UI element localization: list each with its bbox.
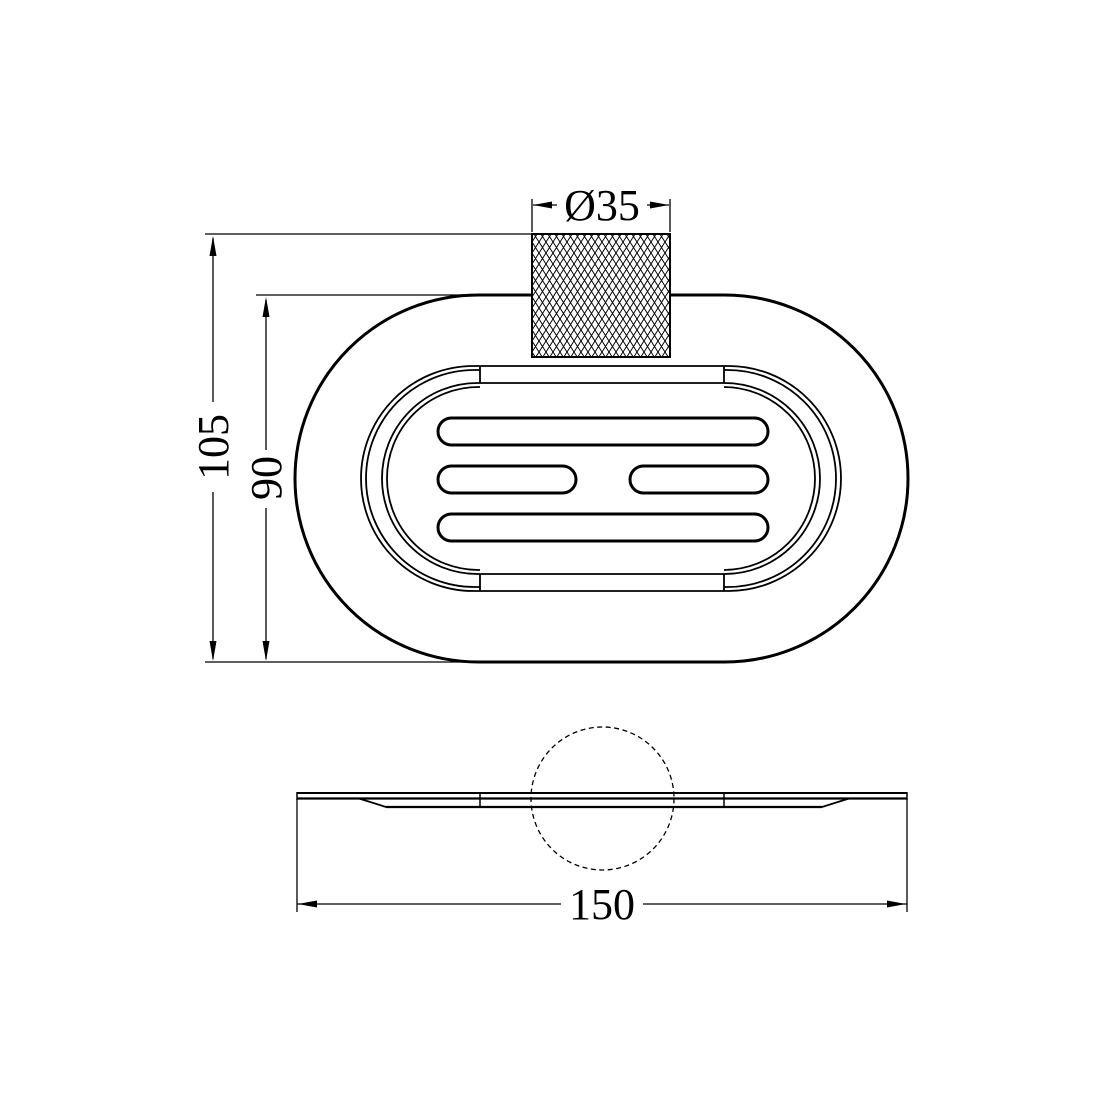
- dim-overall-width-label: 150: [569, 880, 635, 929]
- dim-dish-height-label: 90: [242, 456, 291, 500]
- rim-flat-band-top: [480, 364, 724, 390]
- rim-inner-chamfer: [387, 387, 815, 570]
- side-view: [297, 727, 907, 870]
- top-view: [295, 234, 908, 662]
- drain-slot-middle-left: [438, 466, 576, 493]
- rim-flat-band-bottom: [480, 567, 724, 593]
- rim-outer-chamfer: [366, 370, 836, 587]
- knurled-knob: [532, 234, 670, 357]
- drain-slot-bottom: [438, 514, 768, 541]
- dim-overall-height-label: 105: [189, 414, 238, 480]
- rim-inner-edge: [382, 383, 820, 574]
- drain-slot-top: [438, 418, 768, 445]
- drawing-canvas: Ø35 105 90 150: [0, 0, 1109, 1109]
- plate-taper-left: [359, 799, 386, 808]
- technical-drawing-svg: Ø35 105 90 150: [0, 0, 1109, 1109]
- plate-taper-right: [822, 799, 849, 808]
- dim-knob-diameter-label: Ø35: [564, 181, 640, 230]
- drain-slot-middle-right: [630, 466, 768, 493]
